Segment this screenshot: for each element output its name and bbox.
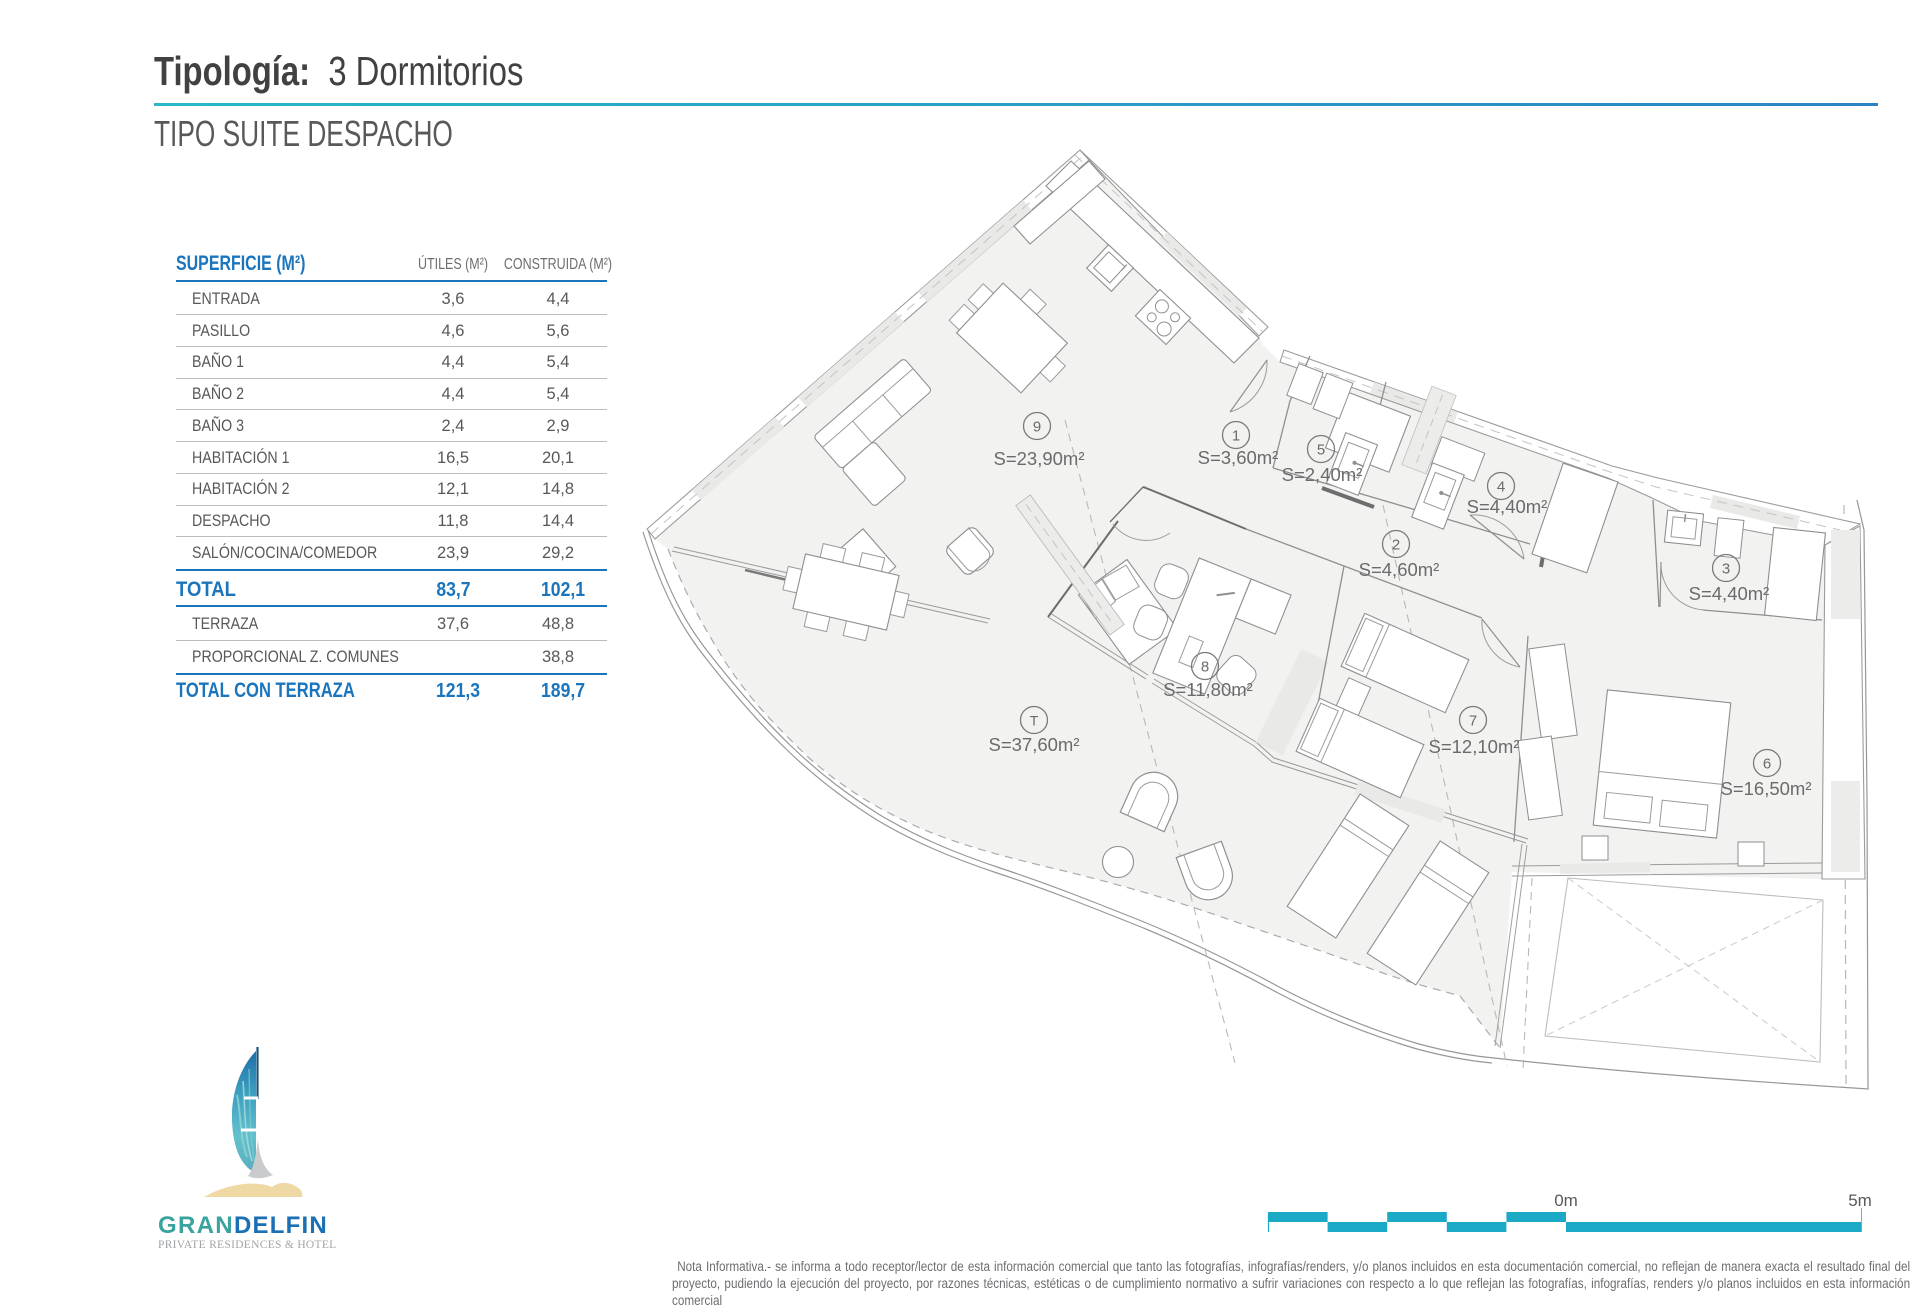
svg-text:1: 1 [1232,428,1240,445]
svg-text:GRAN: GRAN [158,1212,234,1239]
svg-text:4: 4 [1497,479,1505,496]
svg-text:S=4,40m²: S=4,40m² [1689,583,1770,604]
svg-text:3: 3 [1722,561,1730,578]
svg-text:S=12,10m²: S=12,10m² [1428,736,1519,757]
svg-text:7: 7 [1469,713,1477,730]
svg-text:S=4,60m²: S=4,60m² [1359,559,1440,580]
svg-text:S=2,40m²: S=2,40m² [1282,464,1363,485]
svg-text:9: 9 [1033,419,1041,436]
svg-text:PRIVATE RESIDENCES & HOTEL: PRIVATE RESIDENCES & HOTEL [158,1239,337,1251]
svg-text:2: 2 [1392,537,1400,554]
svg-text:S=11,80m²: S=11,80m² [1163,679,1253,700]
svg-text:S=16,50m²: S=16,50m² [1720,778,1811,799]
svg-text:8: 8 [1201,659,1209,676]
svg-text:T: T [1030,713,1039,729]
svg-text:S=23,90m²: S=23,90m² [993,448,1084,469]
svg-text:S=4,40m²: S=4,40m² [1467,496,1548,517]
svg-text:DELFIN: DELFIN [234,1212,328,1239]
svg-text:S=3,60m²: S=3,60m² [1198,447,1279,468]
svg-text:6: 6 [1763,756,1771,773]
svg-text:S=37,60m²: S=37,60m² [988,734,1079,755]
svg-text:5: 5 [1317,442,1325,459]
